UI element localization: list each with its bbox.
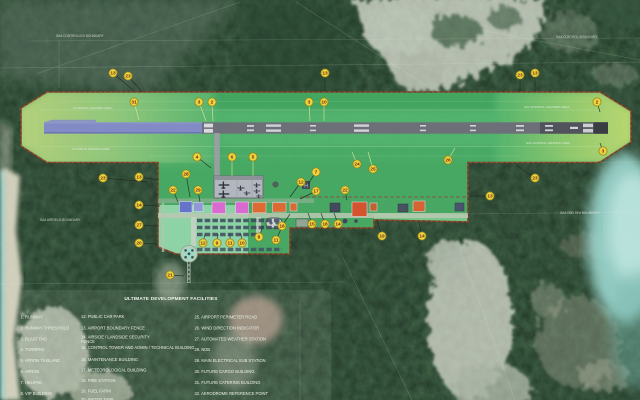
svg-text:13: 13 (322, 71, 328, 77)
svg-text:FENCE: FENCE (81, 339, 95, 344)
svg-text:17: 17 (313, 189, 319, 195)
svg-text:11: 11 (227, 241, 232, 247)
svg-text:15. CONTROL TOWER AND ADMIN /: 15. CONTROL TOWER AND ADMIN / TECHNICAL … (81, 345, 194, 350)
svg-text:7. HELIPAD: 7. HELIPAD (21, 380, 43, 385)
svg-text:7: 7 (315, 170, 318, 176)
svg-text:13: 13 (532, 71, 538, 77)
svg-text:16. MAINTENANCE BUILDING: 16. MAINTENANCE BUILDING (81, 357, 138, 362)
svg-text:5: 5 (252, 155, 255, 161)
svg-text:27: 27 (136, 223, 142, 229)
svg-text:6. APRON: 6. APRON (21, 369, 40, 374)
svg-text:4: 4 (196, 155, 199, 161)
svg-text:12: 12 (298, 180, 304, 186)
svg-text:13: 13 (136, 175, 142, 181)
svg-text:10: 10 (239, 241, 245, 247)
svg-text:17. METEOROLOGICAL BUILDING: 17. METEOROLOGICAL BUILDING (81, 368, 147, 373)
svg-text:20: 20 (136, 241, 142, 247)
svg-text:25. AIRPORT PERIMETER ROAD: 25. AIRPORT PERIMETER ROAD (195, 315, 258, 320)
svg-text:2. RUNWAY THRESHOLD: 2. RUNWAY THRESHOLD (21, 325, 70, 330)
svg-text:2: 2 (211, 100, 214, 106)
svg-text:16: 16 (279, 224, 285, 230)
svg-text:18: 18 (322, 222, 328, 228)
svg-text:13. AIRPORT BOUNDARY FENCE: 13. AIRPORT BOUNDARY FENCE (81, 325, 145, 330)
svg-text:8: 8 (258, 235, 261, 241)
svg-text:31: 31 (131, 100, 137, 106)
svg-text:15: 15 (309, 222, 315, 228)
svg-text:10: 10 (321, 100, 327, 106)
svg-text:3: 3 (198, 100, 201, 106)
svg-text:5. APRON TAXILANE: 5. APRON TAXILANE (21, 358, 61, 363)
svg-text:3: 3 (602, 149, 605, 155)
svg-text:13: 13 (487, 194, 493, 200)
svg-text:29: 29 (195, 188, 201, 194)
svg-text:ULTIMATE DEVELOPMENT FACILITIE: ULTIMATE DEVELOPMENT FACILITIES (124, 296, 218, 302)
svg-text:13: 13 (110, 71, 116, 77)
svg-text:30. FUTURE CARGO BUILDING: 30. FUTURE CARGO BUILDING (195, 369, 255, 374)
svg-text:8. VIP BUILDING: 8. VIP BUILDING (21, 391, 53, 396)
svg-text:9: 9 (216, 241, 219, 247)
svg-text:24: 24 (354, 162, 360, 168)
svg-text:6: 6 (231, 155, 234, 161)
svg-text:23: 23 (125, 74, 131, 80)
svg-text:23: 23 (517, 73, 523, 79)
svg-text:22: 22 (170, 188, 176, 194)
svg-text:3. BLAST PAD: 3. BLAST PAD (21, 336, 48, 341)
svg-text:14: 14 (335, 222, 341, 228)
svg-text:18. FIRE STATION: 18. FIRE STATION (81, 378, 115, 383)
svg-text:12. PUBLIC CAR PARK: 12. PUBLIC CAR PARK (81, 314, 125, 319)
svg-text:27. AUTOMATED WEATHER STATION: 27. AUTOMATED WEATHER STATION (195, 336, 267, 341)
svg-text:28. NDB: 28. NDB (195, 347, 211, 352)
svg-text:26: 26 (445, 158, 451, 164)
svg-text:26. WIND DIRECTION INDICATOR: 26. WIND DIRECTION INDICATOR (195, 325, 260, 330)
svg-text:14: 14 (136, 203, 142, 209)
svg-text:1. RUNWAY: 1. RUNWAY (21, 315, 44, 320)
svg-text:2: 2 (596, 100, 599, 106)
svg-text:12: 12 (200, 241, 206, 247)
svg-text:4. TURNPAD: 4. TURNPAD (21, 347, 45, 352)
svg-text:29. MAIN ELECTRICAL SUB STATIO: 29. MAIN ELECTRICAL SUB STATION (195, 358, 266, 363)
svg-text:28: 28 (183, 172, 189, 178)
svg-text:21: 21 (167, 273, 173, 279)
svg-text:19: 19 (379, 234, 385, 240)
svg-text:23: 23 (100, 176, 106, 182)
svg-text:23: 23 (532, 176, 538, 182)
svg-text:14: 14 (419, 234, 425, 240)
svg-text:22: 22 (342, 188, 348, 194)
svg-text:25: 25 (370, 167, 376, 173)
svg-text:19. FUEL FARM: 19. FUEL FARM (81, 388, 111, 393)
svg-text:32. AERODROME REFERENCE POINT: 32. AERODROME REFERENCE POINT (195, 391, 269, 396)
svg-text:31. FUTURE CATERING BUILDING: 31. FUTURE CATERING BUILDING (195, 380, 261, 385)
svg-text:3: 3 (308, 100, 311, 106)
svg-text:11: 11 (273, 238, 278, 244)
